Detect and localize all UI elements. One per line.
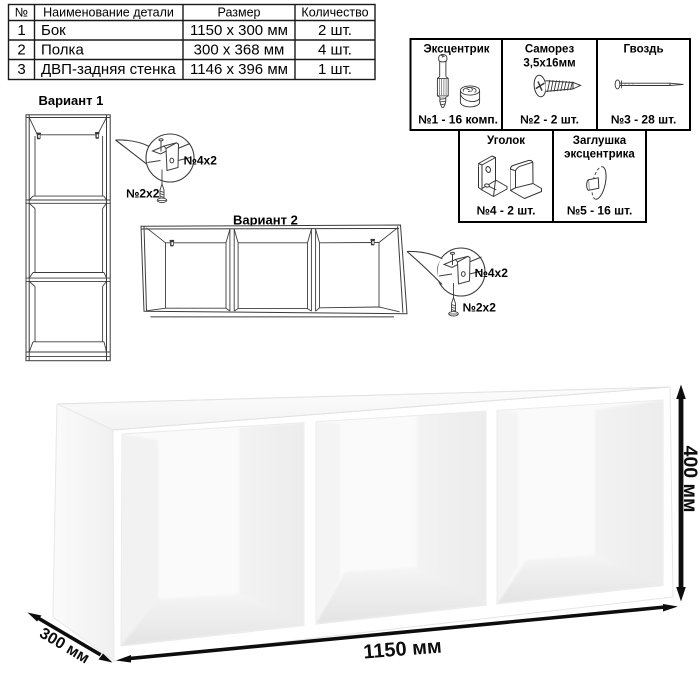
svg-text:3,5х16мм: 3,5х16мм xyxy=(523,58,575,70)
svg-text:№2х2: №2х2 xyxy=(463,301,497,315)
svg-text:Бок: Бок xyxy=(41,22,66,39)
svg-text:эксцентрика: эксцентрика xyxy=(564,149,635,161)
svg-text:№4х2: №4х2 xyxy=(184,154,218,168)
svg-text:1146 х 396 мм: 1146 х 396 мм xyxy=(190,61,288,78)
svg-text:Заглушка: Заглушка xyxy=(573,135,627,147)
svg-text:Наименование детали: Наименование детали xyxy=(43,6,174,20)
svg-text:№1 - 16 комп.: №1 - 16 комп. xyxy=(418,113,498,127)
svg-text:Размер: Размер xyxy=(218,6,261,20)
svg-text:Количество: Количество xyxy=(301,6,368,20)
svg-text:№4 - 2 шт.: №4 - 2 шт. xyxy=(477,204,536,218)
svg-text:№2х2: №2х2 xyxy=(126,187,160,201)
svg-text:300 х 368 мм: 300 х 368 мм xyxy=(194,42,285,59)
svg-text:ДВП-задняя стенка: ДВП-задняя стенка xyxy=(41,61,176,78)
svg-text:Гвоздь: Гвоздь xyxy=(623,44,663,56)
svg-text:Полка: Полка xyxy=(41,42,84,59)
svg-text:3: 3 xyxy=(17,61,25,78)
svg-text:№5 - 16 шт.: №5 - 16 шт. xyxy=(567,204,633,218)
svg-text:Вариант 1: Вариант 1 xyxy=(39,93,104,108)
svg-text:№3 - 28 шт.: №3 - 28 шт. xyxy=(611,113,677,127)
svg-text:1: 1 xyxy=(17,22,25,39)
svg-text:2: 2 xyxy=(17,42,25,59)
svg-text:Уголок: Уголок xyxy=(487,135,525,147)
svg-text:№4х2: №4х2 xyxy=(475,266,509,280)
svg-text:Саморез: Саморез xyxy=(525,44,575,56)
svg-text:Эксцентрик: Эксцентрик xyxy=(423,44,489,56)
svg-text:№: № xyxy=(15,6,28,20)
svg-text:1 шт.: 1 шт. xyxy=(318,61,352,78)
svg-text:№2 - 2 шт.: №2 - 2 шт. xyxy=(520,113,579,127)
svg-text:400 мм: 400 мм xyxy=(679,446,700,513)
svg-text:4 шт.: 4 шт. xyxy=(318,42,352,59)
svg-text:1150 х 300 мм: 1150 х 300 мм xyxy=(190,22,288,39)
svg-text:2 шт.: 2 шт. xyxy=(318,22,352,39)
